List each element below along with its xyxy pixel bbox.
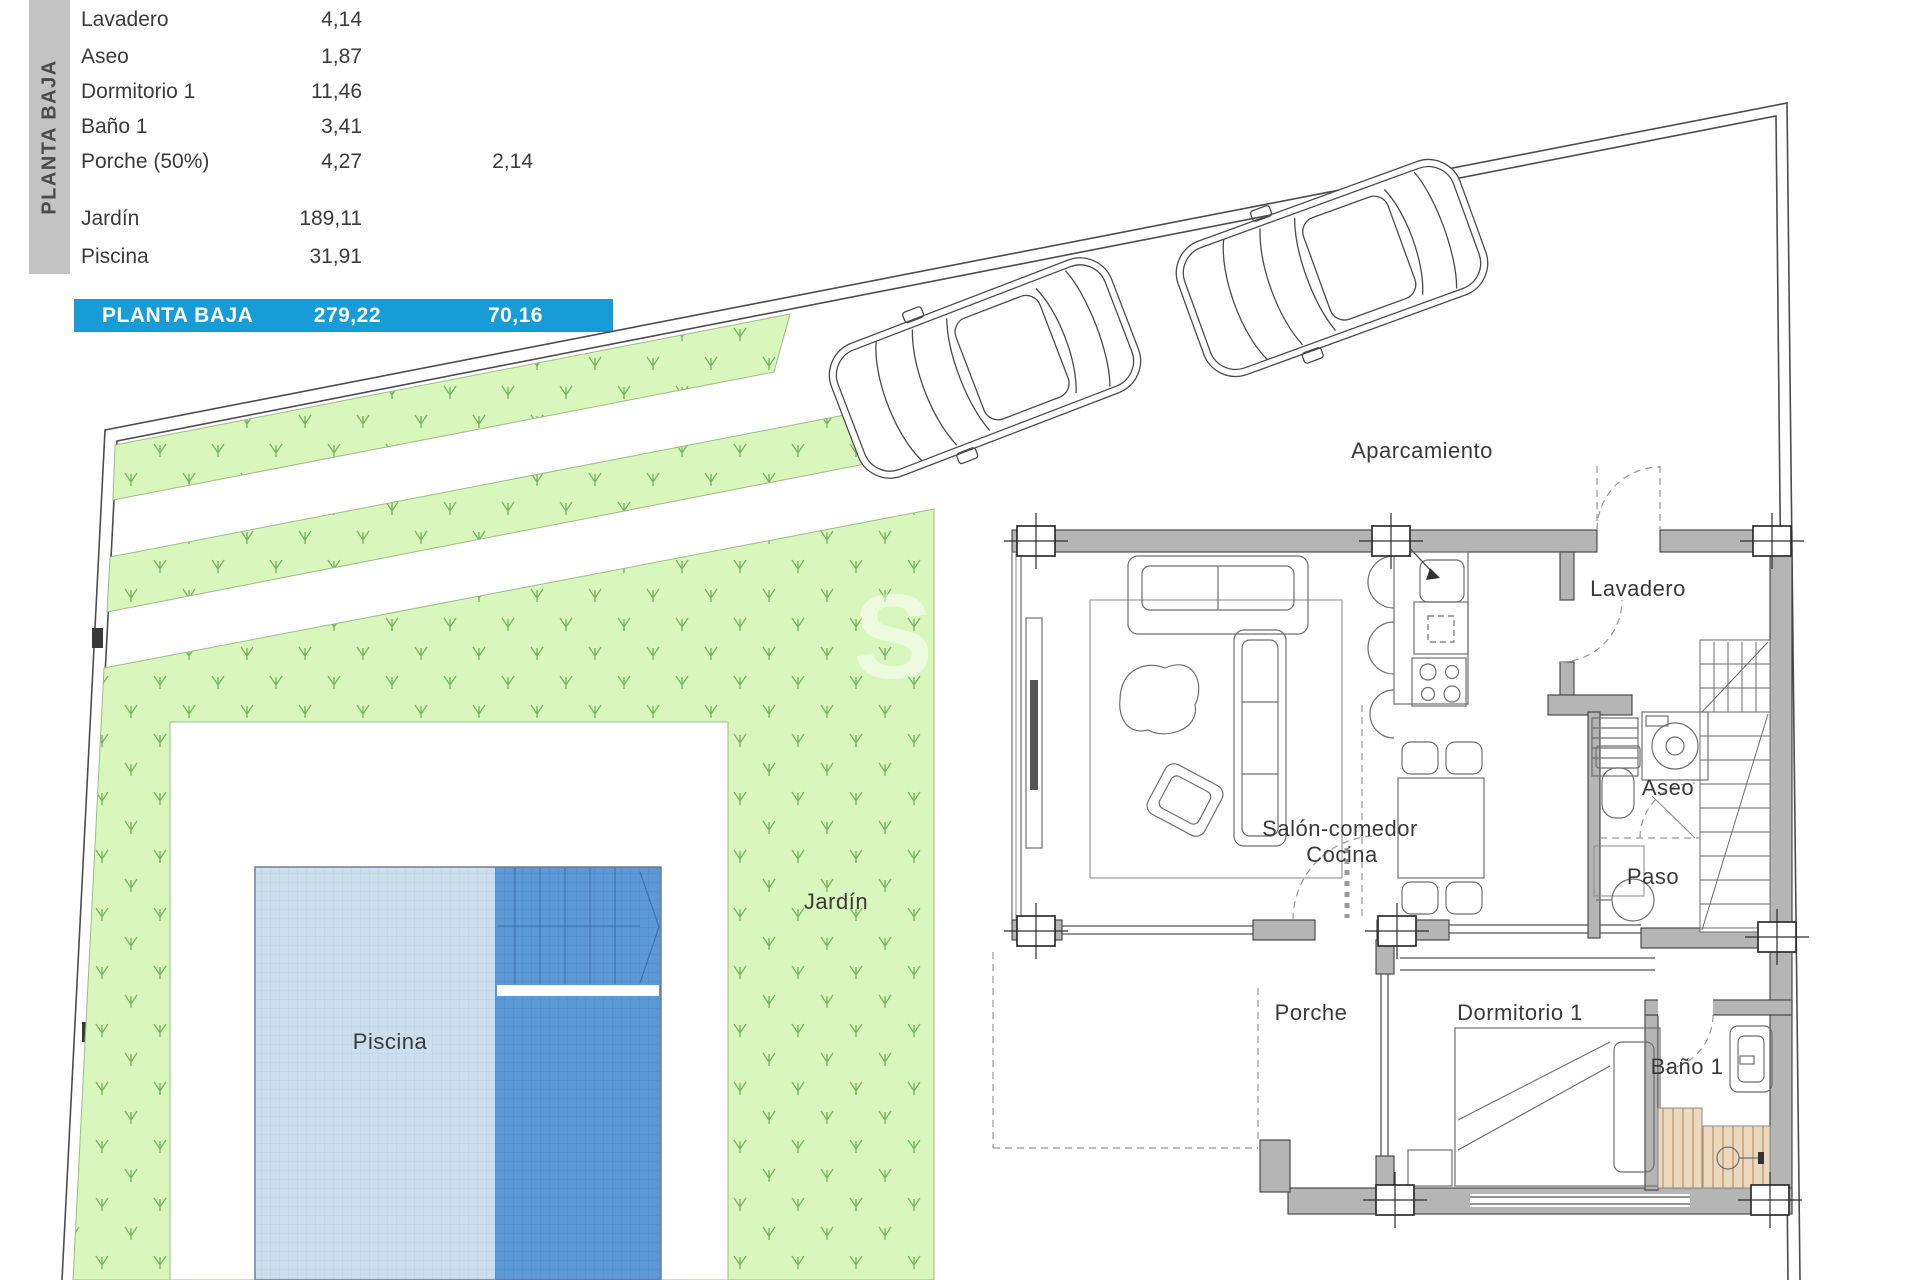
coffee-table — [1120, 665, 1199, 734]
label-dormitorio: Dormitorio 1 — [1457, 1000, 1583, 1025]
nightstand — [1408, 1150, 1452, 1186]
watermark-letter: S — [853, 570, 933, 704]
car — [1163, 141, 1500, 396]
label-porche: Porche — [1275, 1000, 1348, 1025]
label-piscina: Piscina — [353, 1029, 428, 1054]
fence-mark — [92, 628, 103, 648]
kitchen-oven — [1414, 602, 1468, 654]
label-paso: Paso — [1627, 864, 1679, 889]
pool-shallow — [255, 867, 495, 1280]
fridge-arcs — [1368, 556, 1394, 738]
kitchen — [1368, 542, 1468, 738]
label-cocina: Cocina — [1306, 842, 1378, 867]
label-bano: Baño 1 — [1651, 1054, 1724, 1079]
label-jardin: Jardín — [804, 889, 868, 914]
chair — [1446, 742, 1482, 774]
stairs — [1700, 640, 1770, 932]
label-aseo: Aseo — [1642, 775, 1694, 800]
chair — [1446, 882, 1482, 914]
floor-plan-drawing: S Aparcamiento Lavadero Aseo Paso Salón-… — [0, 0, 1920, 1280]
label-aparcamiento: Aparcamiento — [1351, 438, 1493, 463]
toilet-tank — [1596, 746, 1640, 768]
label-lavadero: Lavadero — [1590, 576, 1686, 601]
aseo-fixtures — [1594, 746, 1700, 921]
armchair — [1144, 760, 1227, 839]
floor-plan-page: PLANTA BAJA Lavadero4,14 Aseo1,87 Dormit… — [0, 0, 1920, 1280]
pool — [255, 867, 661, 1280]
bed — [1455, 1028, 1660, 1186]
pool-divider — [497, 985, 659, 996]
label-salon-comedor: Salón-comedor — [1262, 816, 1418, 841]
entry-door-arc — [1597, 467, 1660, 530]
bedroom — [1408, 1028, 1660, 1186]
watermark: S — [853, 570, 996, 704]
shower-tray — [1658, 1108, 1702, 1188]
car — [816, 239, 1154, 498]
chair — [1402, 742, 1438, 774]
chair — [1402, 882, 1438, 914]
pool-deep — [495, 867, 661, 1280]
lavadero-door-arc — [1560, 600, 1622, 662]
bathroom-fixtures — [1658, 1015, 1772, 1188]
